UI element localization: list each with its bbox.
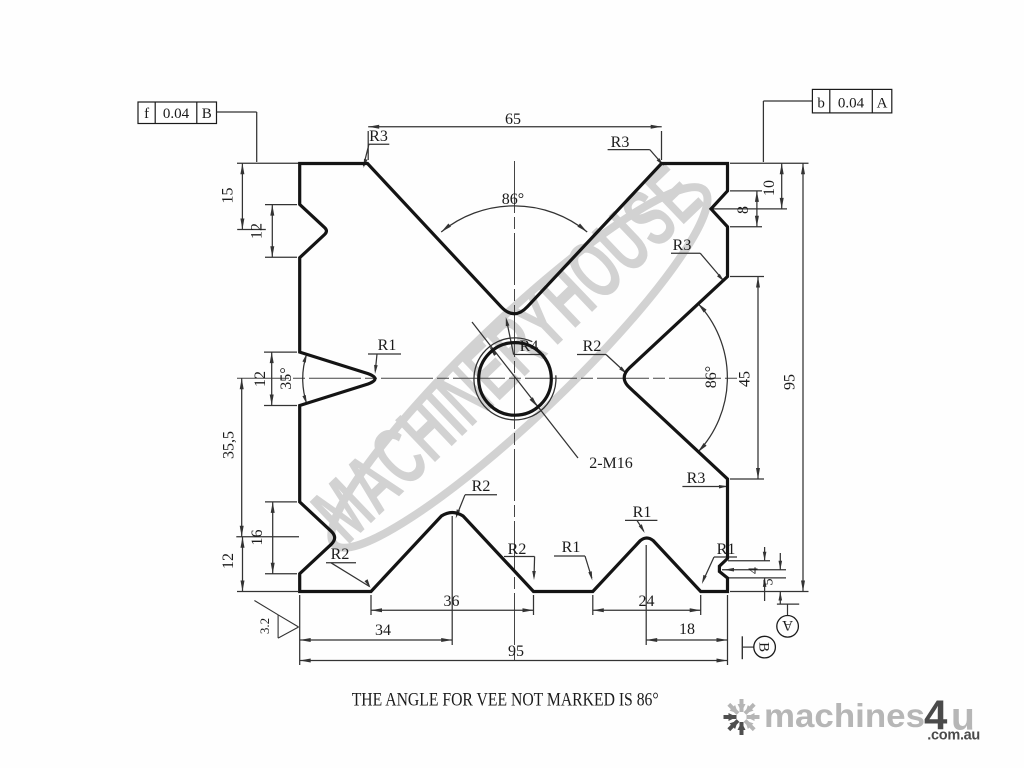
svg-text:b: b [817, 95, 825, 111]
svg-text:B: B [202, 106, 212, 122]
svg-text:R3: R3 [611, 134, 630, 151]
svg-text:machines: machines [764, 697, 925, 734]
svg-text:36: 36 [444, 593, 460, 610]
svg-text:65: 65 [505, 111, 521, 128]
svg-text:A: A [877, 95, 888, 111]
svg-text:35,5: 35,5 [221, 431, 238, 459]
svg-text:16: 16 [249, 530, 266, 546]
svg-text:12: 12 [220, 553, 237, 569]
svg-text:12: 12 [252, 371, 269, 387]
svg-text:45: 45 [737, 371, 754, 387]
svg-text:15: 15 [220, 188, 237, 204]
svg-text:8: 8 [735, 206, 752, 214]
svg-text:18: 18 [679, 621, 695, 638]
svg-text:95: 95 [782, 374, 799, 390]
svg-text:3.2: 3.2 [257, 618, 272, 634]
svg-text:A: A [782, 617, 793, 633]
svg-text:THE ANGLE FOR VEE NOT MARKED I: THE ANGLE FOR VEE NOT MARKED IS 86° [352, 690, 659, 711]
svg-text:5: 5 [762, 579, 777, 586]
svg-text:R2: R2 [583, 338, 602, 355]
svg-text:86°: 86° [502, 191, 524, 208]
svg-text:10: 10 [761, 180, 778, 196]
svg-text:R2: R2 [331, 546, 350, 563]
svg-text:R3: R3 [687, 470, 706, 487]
svg-text:34: 34 [375, 622, 391, 639]
svg-text:R2: R2 [508, 541, 527, 558]
svg-text:R3: R3 [673, 237, 692, 254]
svg-text:B: B [755, 642, 771, 652]
svg-text:35°: 35° [278, 367, 295, 389]
svg-text:4: 4 [747, 567, 762, 574]
svg-text:0.04: 0.04 [838, 95, 865, 111]
svg-text:R1: R1 [633, 504, 652, 521]
svg-text:R1: R1 [562, 539, 581, 556]
svg-text:12: 12 [249, 223, 266, 239]
svg-text:0.04: 0.04 [163, 106, 190, 122]
svg-text:2-M16: 2-M16 [589, 455, 633, 472]
svg-text:.com.au: .com.au [927, 728, 980, 744]
svg-text:R2: R2 [472, 478, 491, 495]
svg-text:95: 95 [508, 643, 524, 660]
svg-text:86°: 86° [703, 366, 720, 388]
svg-text:R1: R1 [378, 337, 397, 354]
svg-text:f: f [144, 106, 149, 122]
svg-text:R3: R3 [369, 128, 388, 145]
